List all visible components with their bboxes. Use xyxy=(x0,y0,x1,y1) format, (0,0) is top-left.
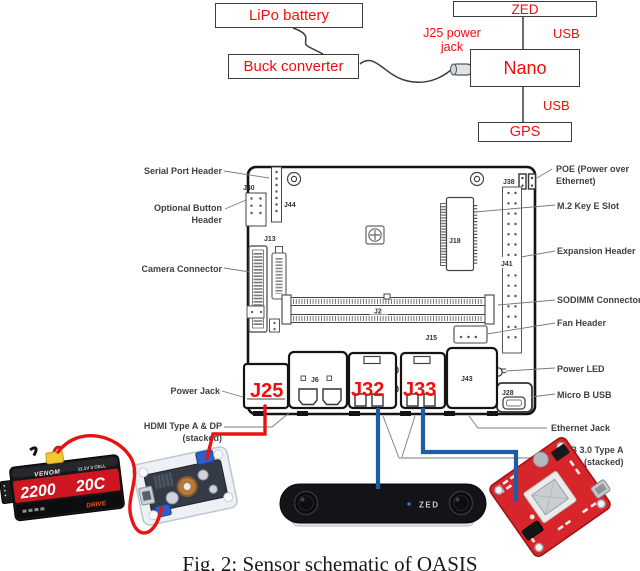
m2-key-e-slot-j18: J18 xyxy=(441,198,476,271)
figure-caption: Fig. 2: Sensor schematic of OASIS xyxy=(10,552,640,571)
battery-to-buck-wire xyxy=(293,28,323,54)
label-usb3-stacked: (stacked) xyxy=(584,457,624,467)
ref-j13: J13 xyxy=(264,236,276,243)
figure-sensor-schematic: J44 J40 J13 J18 J38 xyxy=(0,0,640,571)
ref-j2: J2 xyxy=(374,309,382,316)
zed-logo: ZED xyxy=(419,501,440,510)
ref-j41: J41 xyxy=(501,261,513,268)
port-label-j33: J33 xyxy=(403,379,436,401)
ref-j15: J15 xyxy=(425,335,437,342)
ref-j44: J44 xyxy=(284,202,296,209)
label-poe: POE (Power over xyxy=(556,164,630,174)
expansion-header-j41: J41 xyxy=(500,187,522,353)
label-m2-key-e-slot: M.2 Key E Slot xyxy=(557,201,619,211)
zed-led xyxy=(407,502,410,505)
usb-label-bottom: USB xyxy=(543,99,570,113)
label-power-led: Power LED xyxy=(557,364,605,374)
carrier-board: J44 J40 J13 J18 J38 xyxy=(243,167,536,416)
block-nano-label: Nano xyxy=(503,58,546,79)
block-zed-label: ZED xyxy=(512,2,539,17)
ref-j18: J18 xyxy=(449,238,461,245)
label-ethernet-jack: Ethernet Jack xyxy=(551,423,611,433)
ref-j38: J38 xyxy=(503,179,515,186)
block-gps: GPS xyxy=(478,122,572,142)
label-poe-2: Ethernet) xyxy=(556,176,596,186)
ref-j40: J40 xyxy=(243,185,255,192)
port-label-j25: J25 xyxy=(250,380,283,402)
label-fan-header: Fan Header xyxy=(557,318,607,328)
block-zed: ZED xyxy=(453,1,597,17)
label-serial-port-header: Serial Port Header xyxy=(144,166,223,176)
ref-j28: J28 xyxy=(502,390,514,397)
zed-camera-photo: ZED xyxy=(280,484,486,526)
buck-to-jack-wire xyxy=(360,60,451,82)
block-buck-converter: Buck converter xyxy=(228,54,359,79)
ref-j6: J6 xyxy=(311,377,319,384)
buck-converter-photo xyxy=(132,446,239,527)
j25-power-jack-label: J25 power jack xyxy=(413,27,491,55)
label-optional-button: Optional Button xyxy=(154,203,222,213)
j25-power-jack-label-line2: jack xyxy=(441,40,463,54)
label-hdmi: HDMI Type A & DP xyxy=(144,421,222,431)
j25-power-jack-label-line1: J25 power xyxy=(423,26,481,40)
block-buck-converter-label: Buck converter xyxy=(243,58,343,75)
label-expansion-header: Expansion Header xyxy=(557,246,636,256)
ethernet-jack-j43: J43 xyxy=(447,348,502,408)
block-gps-label: GPS xyxy=(510,124,541,140)
lipo-battery-photo: VENOM 11.1V 3 CELL 2200 20C DRIVE xyxy=(0,438,125,523)
label-camera-connector: Camera Connector xyxy=(141,264,222,274)
label-micro-b-usb: Micro B USB xyxy=(557,390,612,400)
label-sodimm-connector: SODIMM Connector xyxy=(557,295,640,305)
port-label-j32: J32 xyxy=(351,379,384,401)
ref-j43: J43 xyxy=(461,376,473,383)
barrel-jack-icon xyxy=(451,64,473,75)
label-power-jack: Power Jack xyxy=(170,386,221,396)
usb-label-top: USB xyxy=(553,27,580,41)
block-lipo-battery-label: LiPo battery xyxy=(249,7,329,24)
block-nano: Nano xyxy=(470,49,580,87)
label-optional-button-2: Header xyxy=(191,215,222,225)
block-lipo-battery: LiPo battery xyxy=(215,3,363,28)
micro-b-usb-j28: J28 xyxy=(497,383,532,412)
hdmi-connector-j6: J6 xyxy=(289,352,347,408)
